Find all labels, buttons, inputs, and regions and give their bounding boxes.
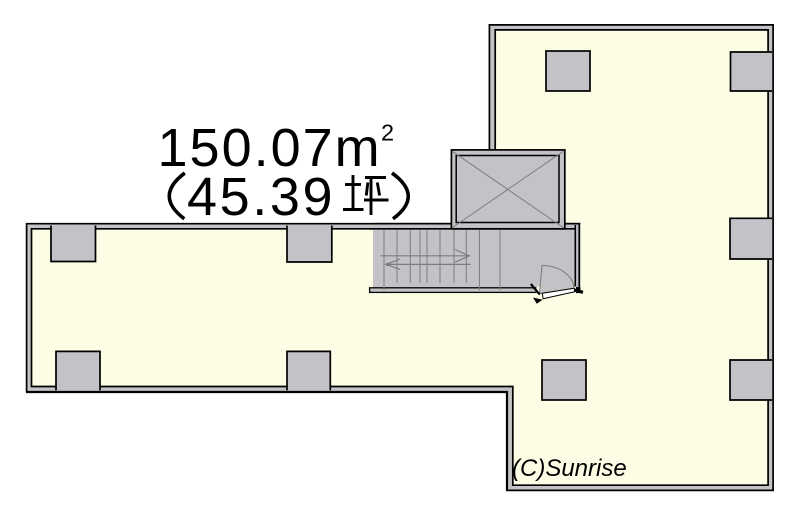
svg-text:45.39: 45.39 <box>187 167 335 227</box>
svg-text:2: 2 <box>381 120 394 146</box>
svg-text:(C)Sunrise: (C)Sunrise <box>512 455 627 482</box>
